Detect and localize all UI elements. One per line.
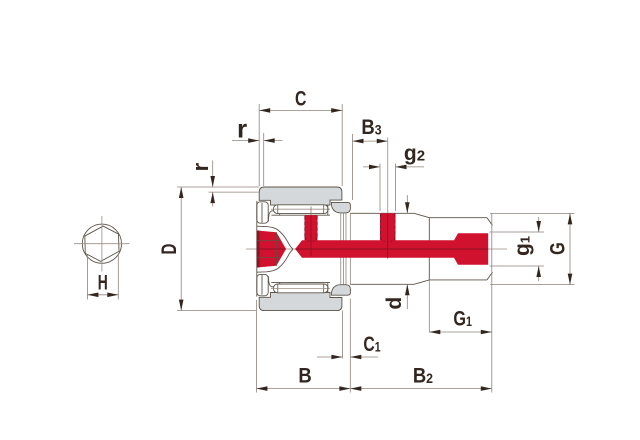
svg-text:G: G	[545, 242, 569, 255]
svg-text:D: D	[156, 244, 180, 255]
svg-text:H: H	[98, 271, 108, 295]
svg-text:d: d	[383, 297, 406, 310]
svg-text:r: r	[237, 114, 247, 144]
svg-text:C: C	[295, 86, 306, 110]
svg-text:B: B	[298, 365, 311, 388]
svg-text:r: r	[188, 162, 213, 171]
